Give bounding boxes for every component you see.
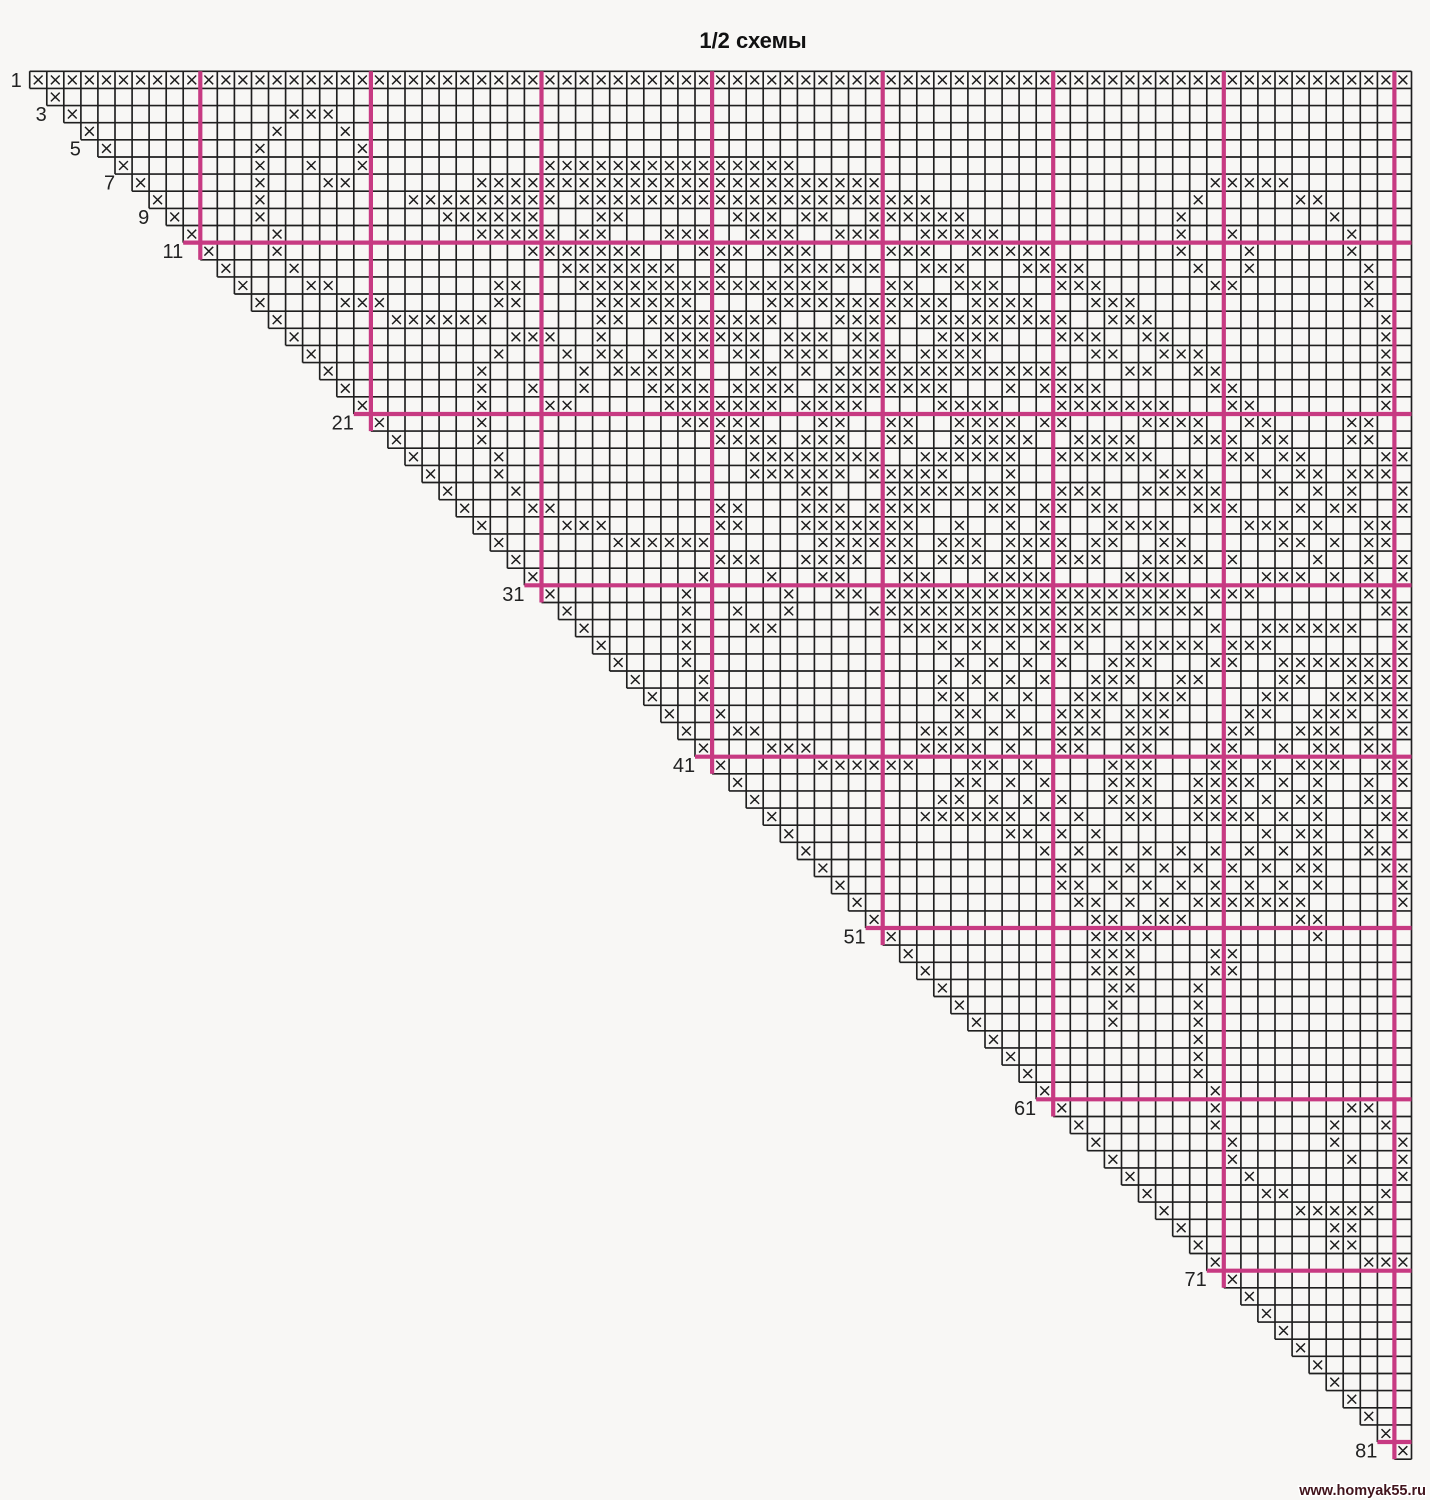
svg-text:www.homyak55.ru: www.homyak55.ru — [1298, 1483, 1426, 1499]
svg-text:1: 1 — [11, 70, 22, 92]
svg-text:5: 5 — [70, 138, 81, 160]
svg-text:9: 9 — [138, 207, 149, 229]
svg-text:1/2 схемы: 1/2 схемы — [699, 28, 806, 53]
svg-text:7: 7 — [104, 173, 115, 195]
svg-text:21: 21 — [332, 413, 354, 435]
svg-text:51: 51 — [843, 927, 865, 949]
svg-text:71: 71 — [1185, 1269, 1207, 1291]
svg-text:11: 11 — [163, 241, 184, 263]
svg-text:41: 41 — [673, 755, 695, 777]
svg-text:31: 31 — [502, 584, 524, 606]
svg-text:3: 3 — [36, 104, 47, 126]
svg-text:61: 61 — [1014, 1098, 1036, 1120]
svg-text:81: 81 — [1355, 1441, 1377, 1463]
